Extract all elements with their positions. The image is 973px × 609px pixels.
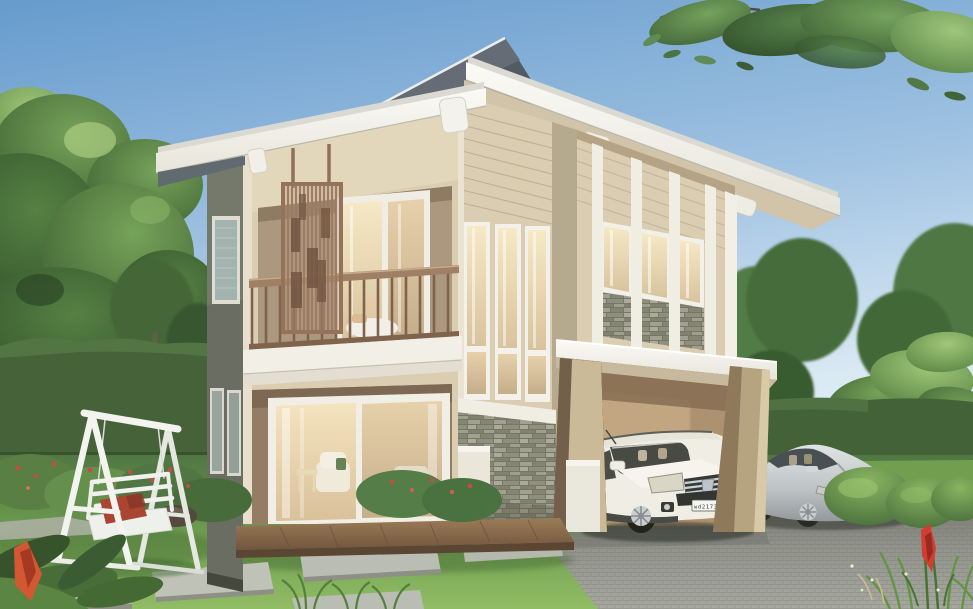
house-exterior-illustration: wd21739 wd21739	[0, 0, 973, 609]
rendered-scene: wd21739 wd21739	[0, 0, 973, 609]
light-wash	[0, 0, 973, 609]
